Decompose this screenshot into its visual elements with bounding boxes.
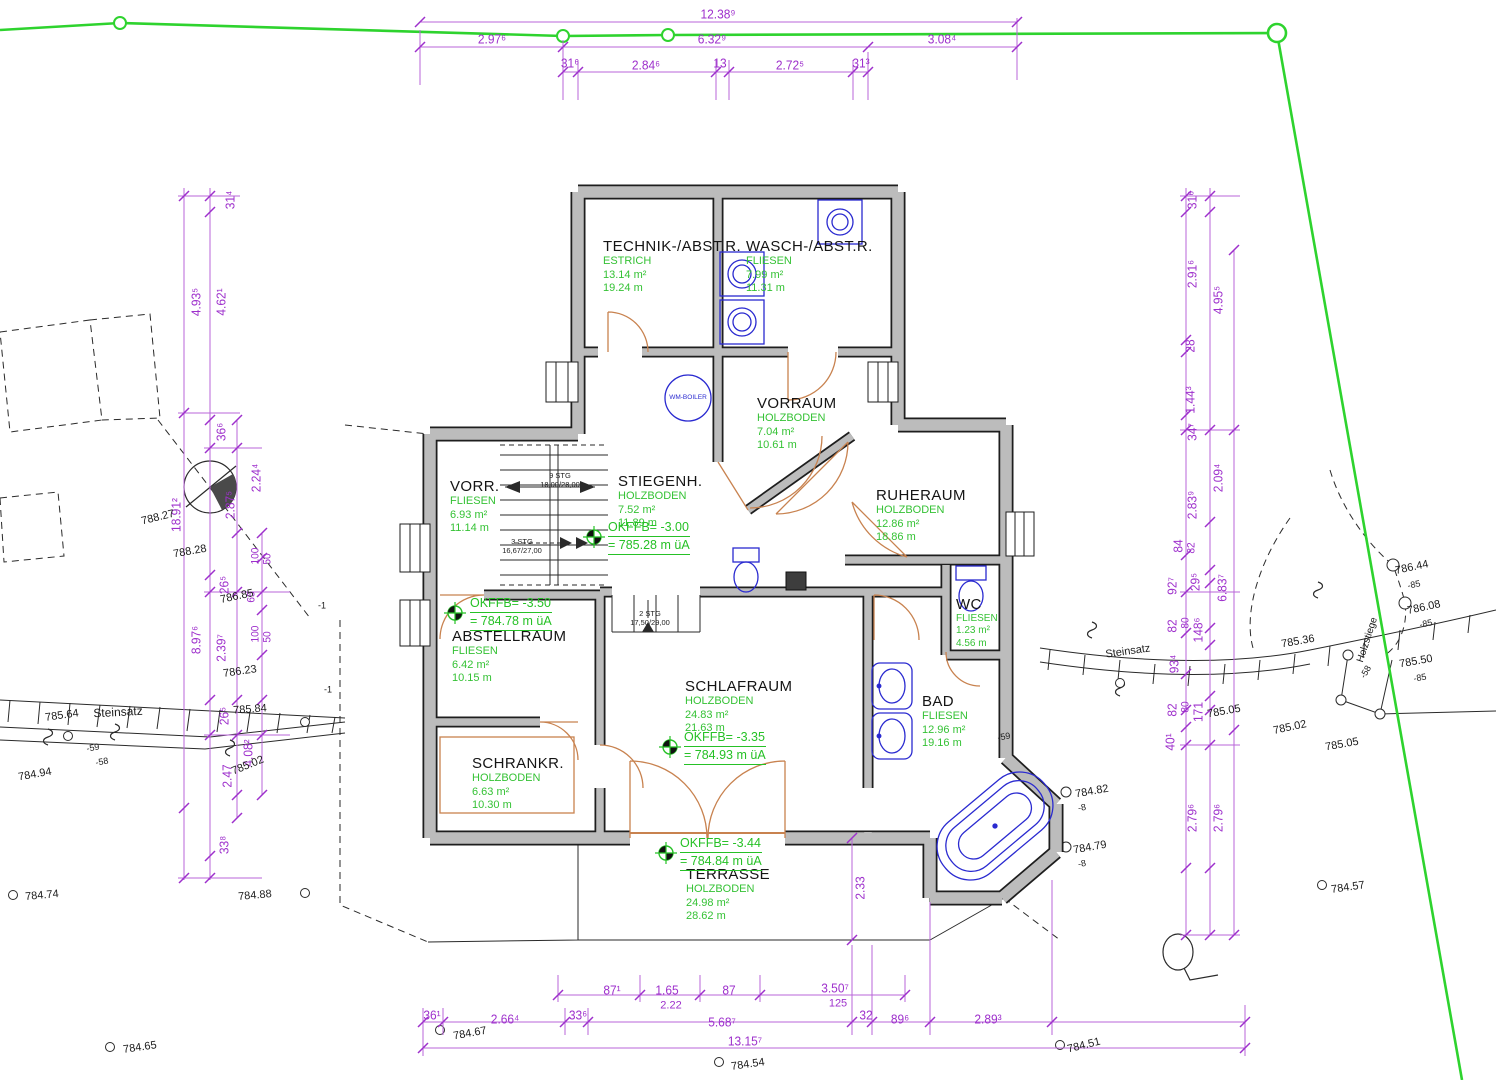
- room-floor: HOLZBODEN: [618, 490, 702, 503]
- dim-label: 36⁶: [215, 423, 228, 441]
- room-perimeter: 11.14 m: [450, 522, 500, 535]
- room-bad: BAD FLIESEN 12.96 m² 19.16 m: [922, 693, 968, 750]
- room-perimeter: 4.56 m: [956, 638, 998, 650]
- room-perimeter: 10.61 m: [757, 439, 836, 452]
- dim-label: 87: [722, 984, 735, 997]
- room-floor: HOLZBODEN: [757, 412, 836, 425]
- room-schrankraum: SCHRANKR. HOLZBODEN 6.63 m² 10.30 m: [472, 755, 564, 812]
- stair-label-9stg: 9 STG 18,00/28,00: [540, 471, 580, 489]
- dim-label: 2.09⁴: [1212, 464, 1225, 492]
- dim-label: 28: [1184, 339, 1197, 352]
- level-absolute: = 784.93 m üA: [684, 747, 766, 765]
- room-perimeter: 10.30 m: [472, 799, 564, 812]
- dim-label: 82: [1166, 703, 1179, 716]
- level-schlafraum: OKFFB= -3.35 = 784.93 m üA: [684, 729, 766, 765]
- dim-label: 26⁵: [218, 707, 231, 725]
- stair-count: 9 STG: [540, 471, 580, 480]
- stair-dims: 16,67/27,00: [502, 546, 542, 555]
- dim-label: 92⁷: [1166, 577, 1179, 595]
- room-schlafraum: SCHLAFRAUM HOLZBODEN 24.83 m² 21.63 m: [685, 678, 792, 735]
- room-floor: FLIESEN: [956, 613, 998, 625]
- room-wc: WC FLIESEN 1.23 m² 4.56 m: [956, 596, 998, 650]
- stair-dims: 18,00/28,00: [540, 480, 580, 489]
- dim-label: 2.84⁶: [632, 59, 660, 72]
- dim-label: 31³: [852, 57, 869, 70]
- dim-label: 34⁷: [1186, 423, 1199, 441]
- room-name: TECHNIK-/ABST.R.: [603, 238, 741, 255]
- room-floor: FLIESEN: [922, 710, 968, 723]
- room-perimeter: 11.31 m: [746, 282, 873, 295]
- room-ruheraum: RUHERAUM HOLZBODEN 12.86 m² 18.86 m: [876, 487, 966, 544]
- spot-elevation: -1: [324, 686, 332, 695]
- stair-label-3stg: 3 STG 16,67/27,00: [502, 537, 542, 555]
- dim-label: 5.68⁷: [708, 1016, 736, 1029]
- floor-plan-canvas: 12.38⁹ 2.97⁶ 6.32⁹ 3.08⁴ 31⁶ 2.84⁶ 13 2.…: [0, 0, 1496, 1080]
- room-name: WASCH-/ABST.R.: [746, 238, 873, 255]
- room-floor: FLIESEN: [450, 495, 500, 508]
- chimney: [786, 572, 806, 590]
- level-absolute: = 784.84 m üA: [680, 853, 762, 871]
- dryer-icon: [720, 300, 764, 344]
- dim-label: 13: [713, 57, 726, 70]
- spot-elevation: -1: [318, 602, 326, 611]
- dim-label: 31⁶: [1186, 191, 1199, 209]
- room-perimeter: 28.62 m: [686, 910, 770, 923]
- room-floor: ESTRICH: [603, 255, 741, 268]
- dim-label: 8.97⁶: [190, 626, 203, 654]
- stair-main: [500, 445, 608, 585]
- room-area: 7.04 m²: [757, 426, 836, 439]
- wc-toilet-tank: [956, 566, 986, 580]
- stair-dims: 17,50/29,00: [630, 618, 670, 627]
- dim-label: 2.83⁹: [1186, 491, 1199, 519]
- room-floor: HOLZBODEN: [472, 772, 564, 785]
- dim-label: 1.65: [655, 984, 678, 997]
- dim-label: 50: [263, 553, 274, 564]
- room-floor: FLIESEN: [452, 645, 566, 658]
- room-perimeter: 10.15 m: [452, 672, 566, 685]
- dim-label: 2.66⁴: [491, 1013, 519, 1026]
- dim-label: 4.93⁵: [190, 288, 203, 316]
- dim-label: 148⁶: [1192, 618, 1205, 643]
- dim-label: 29⁵: [1189, 573, 1202, 591]
- dim-total-bottom: 13.15⁷: [728, 1035, 762, 1048]
- room-name: SCHRANKR.: [472, 755, 564, 772]
- dim-label: 2.33: [854, 876, 867, 899]
- dim-label: 32: [859, 1009, 872, 1022]
- room-area: 12.86 m²: [876, 518, 966, 531]
- level-okffb: OKFFB= -3.00: [608, 519, 690, 537]
- dim-label: 84: [1172, 539, 1185, 552]
- wm-boiler-label: WM-BOILER: [669, 395, 707, 402]
- dim-label: 50: [263, 631, 274, 642]
- room-name: RUHERAUM: [876, 487, 966, 504]
- dim-label: 2.39⁷: [215, 634, 228, 662]
- room-terrasse: TERRASSE HOLZBODEN 24.98 m² 28.62 m: [686, 866, 770, 923]
- dim-label: 40¹: [1164, 733, 1177, 750]
- level-abstellraum: OKFFB= -3.50 = 784.78 m üA: [470, 595, 552, 631]
- dim-label: 33⁸: [218, 836, 231, 854]
- room-abstellraum: ABSTELLRAUM FLIESEN 6.42 m² 10.15 m: [452, 628, 566, 685]
- dim-label: 2.91⁶: [1186, 260, 1199, 288]
- room-vorraum: VORRAUM HOLZBODEN 7.04 m² 10.61 m: [757, 395, 836, 452]
- room-area: 7.52 m²: [618, 504, 702, 517]
- dim-label: 82: [1187, 542, 1198, 553]
- room-perimeter: 19.16 m: [922, 737, 968, 750]
- room-name: SCHLAFRAUM: [685, 678, 792, 695]
- dim-label: 100: [251, 626, 262, 643]
- dim-label: 171: [1192, 702, 1205, 722]
- room-area: 24.83 m²: [685, 709, 792, 722]
- dim-label: 2.97⁶: [478, 33, 506, 46]
- bathtub-icon: [924, 759, 1066, 893]
- level-terrasse: OKFFB= -3.44 = 784.84 m üA: [680, 835, 762, 871]
- level-absolute: = 785.28 m üA: [608, 537, 690, 555]
- room-area: 6.93 m²: [450, 509, 500, 522]
- dim-label: 31⁴: [224, 191, 237, 209]
- dim-label: 2.79⁶: [1186, 804, 1199, 832]
- stair-count: 2 STG: [630, 609, 670, 618]
- dim-label: 2.79⁶: [1212, 804, 1225, 832]
- room-wasch: WASCH-/ABST.R. FLIESEN 7.99 m² 11.31 m: [746, 238, 873, 295]
- toilet-tank: [733, 548, 759, 562]
- room-area: 12.96 m²: [922, 724, 968, 737]
- room-name: WC: [956, 596, 998, 613]
- tree-symbol: [1163, 934, 1218, 980]
- dim-total-top: 12.38⁹: [700, 8, 735, 21]
- room-area: 7.99 m²: [746, 269, 873, 282]
- steinsatz-left-label: Steinsatz: [93, 705, 143, 720]
- dim-label: 2.87⁵: [224, 491, 237, 519]
- room-floor: HOLZBODEN: [686, 883, 770, 896]
- stair-count: 3 STG: [502, 537, 542, 546]
- dim-label: 82: [1166, 619, 1179, 632]
- room-vorr: VORR. FLIESEN 6.93 m² 11.14 m: [450, 478, 500, 535]
- room-name: VORRAUM: [757, 395, 836, 412]
- dim-label: 6.83⁷: [1216, 574, 1229, 602]
- room-area: 1.23 m²: [956, 625, 998, 637]
- level-absolute: = 784.78 m üA: [470, 613, 552, 631]
- dim-label: 93⁴: [1168, 655, 1181, 673]
- dim-label: 6.32⁹: [698, 33, 726, 46]
- level-okffb: OKFFB= -3.35: [684, 729, 766, 747]
- room-name: STIEGENH.: [618, 473, 702, 490]
- room-floor: HOLZBODEN: [876, 504, 966, 517]
- level-stiegenhaus: OKFFB= -3.00 = 785.28 m üA: [608, 519, 690, 555]
- dim-label: 3.08⁴: [928, 33, 956, 46]
- dim-label: 125: [829, 999, 847, 1010]
- dim-label: 2.72⁵: [776, 59, 804, 72]
- room-perimeter: 19.24 m: [603, 282, 741, 295]
- room-technik: TECHNIK-/ABST.R. ESTRICH 13.14 m² 19.24 …: [603, 238, 741, 295]
- room-area: 24.98 m²: [686, 897, 770, 910]
- room-floor: FLIESEN: [746, 255, 873, 268]
- spot-elevation: 785.84: [233, 703, 267, 716]
- room-floor: HOLZBODEN: [685, 695, 792, 708]
- dim-label: 2.22: [660, 1001, 681, 1012]
- room-name: BAD: [922, 693, 968, 710]
- room-perimeter: 18.86 m: [876, 531, 966, 544]
- dim-label: 31⁶: [561, 57, 579, 70]
- dim-label: 2.89³: [974, 1013, 1001, 1026]
- dim-label: 4.95⁵: [1212, 286, 1225, 314]
- dim-label: 3.50⁷: [821, 982, 849, 995]
- spot-elevation: -8: [1077, 803, 1086, 813]
- dim-label: 100: [251, 548, 262, 565]
- dim-label: 33⁶: [569, 1009, 587, 1022]
- dim-label: 36¹: [423, 1009, 440, 1022]
- level-okffb: OKFFB= -3.50: [470, 595, 552, 613]
- spot-elevation: -8: [1077, 859, 1086, 869]
- room-area: 13.14 m²: [603, 269, 741, 282]
- room-area: 6.42 m²: [452, 659, 566, 672]
- dim-label: 4.62¹: [215, 288, 228, 315]
- stair-label-2stg: 2 STG 17,50/29,00: [630, 609, 670, 627]
- room-area: 6.63 m²: [472, 786, 564, 799]
- dim-label: 87¹: [603, 984, 620, 997]
- dim-label: 89⁶: [891, 1013, 909, 1026]
- level-okffb: OKFFB= -3.44: [680, 835, 762, 853]
- room-name: VORR.: [450, 478, 500, 495]
- dim-label: 2.24⁴: [250, 464, 263, 492]
- dim-label: 1.44³: [1184, 386, 1197, 413]
